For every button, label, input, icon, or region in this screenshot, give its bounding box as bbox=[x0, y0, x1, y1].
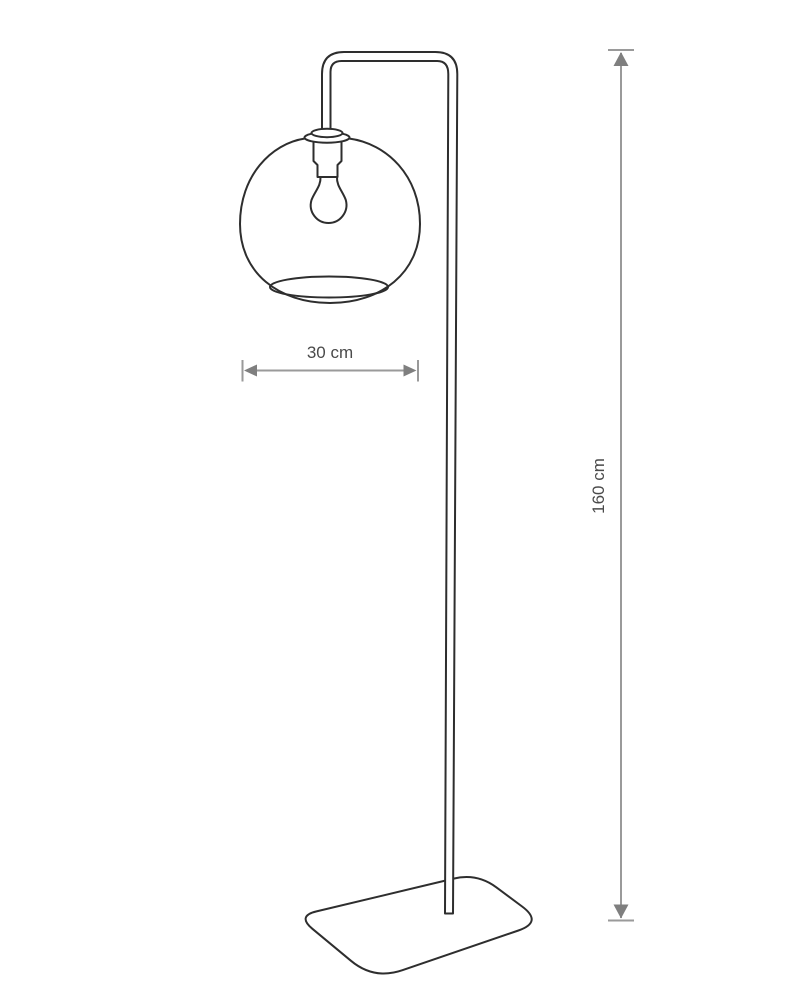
shade-collar-cap bbox=[312, 129, 343, 137]
diagram-svg: 30 cm 160 cm bbox=[0, 0, 800, 1000]
height-dimension: 160 cm bbox=[589, 50, 634, 921]
lamp-base bbox=[306, 877, 532, 973]
height-bottom-arrow-icon bbox=[614, 905, 629, 919]
width-left-arrow-icon bbox=[244, 365, 257, 377]
light-bulb bbox=[311, 177, 347, 223]
shade-opening-rim bbox=[270, 277, 388, 298]
width-dimension: 30 cm bbox=[243, 343, 419, 382]
bulb-socket bbox=[314, 140, 342, 177]
height-top-arrow-icon bbox=[614, 52, 629, 66]
lamp-drawing bbox=[240, 52, 532, 974]
product-dimension-diagram: 30 cm 160 cm bbox=[0, 0, 800, 1000]
width-right-arrow-icon bbox=[404, 365, 417, 377]
lamp-pole bbox=[322, 52, 457, 914]
height-dimension-label: 160 cm bbox=[589, 458, 608, 514]
width-dimension-label: 30 cm bbox=[307, 343, 353, 362]
